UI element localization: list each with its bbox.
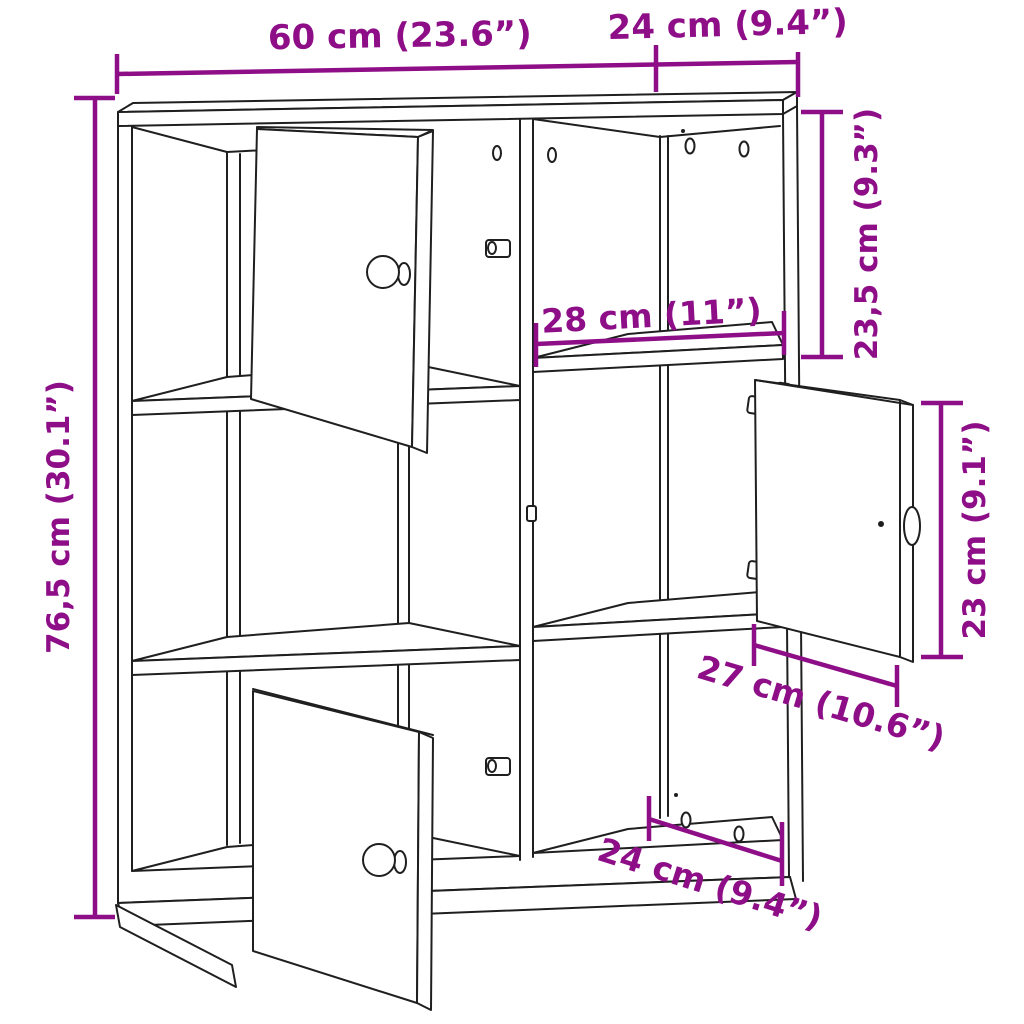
cabinet-dimension-diagram: 60 cm (23.6”) 24 cm (9.4”) 23,5 cm (9.3”… [0, 0, 1024, 1024]
carcass-frame [118, 106, 803, 903]
cabinet-drawing [116, 92, 920, 1010]
diagram-canvas: 60 cm (23.6”) 24 cm (9.4”) 23,5 cm (9.3”… [0, 0, 1024, 1024]
cam-lock-fittings [486, 240, 536, 775]
label-total-width: 60 cm (23.6”) [268, 14, 533, 59]
shelves-right-column [533, 322, 783, 853]
dimension-line-top-compartment-height [801, 112, 843, 357]
label-door-height: 23 cm (9.1”) [957, 420, 993, 639]
dimension-line-total-height [74, 98, 115, 917]
shelf-pin-holes [493, 129, 749, 842]
door-top-left [251, 127, 433, 453]
label-top-compartment-height: 23,5 cm (9.3”) [849, 108, 885, 360]
label-total-height: 76,5 cm (30.1”) [41, 380, 77, 654]
door-middle-right [747, 380, 920, 662]
top-panel [118, 92, 797, 126]
door-bottom-left [253, 689, 433, 1010]
label-top-depth: 24 cm (9.4”) [607, 2, 848, 48]
